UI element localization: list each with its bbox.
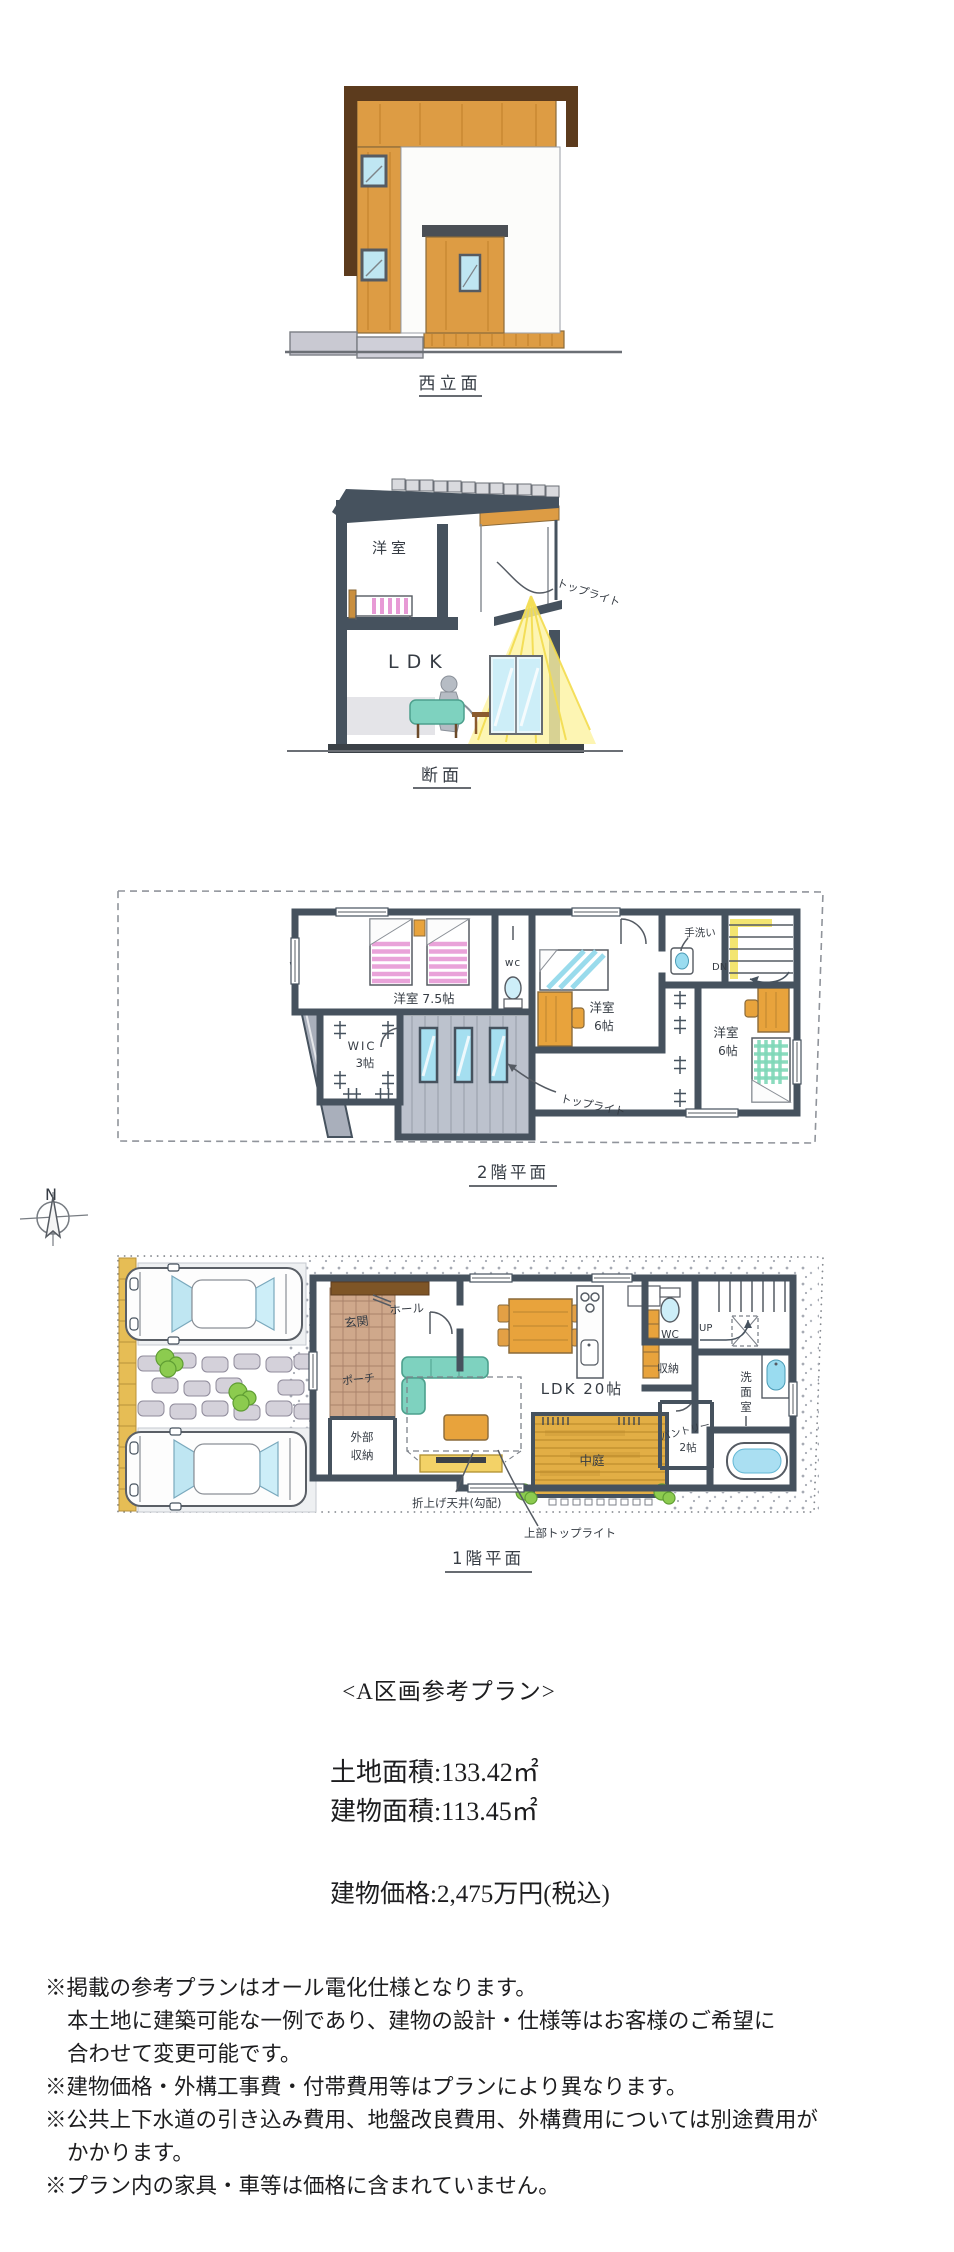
section-drawing: 洋室 LDK トップライト 断面: [280, 470, 630, 800]
entrance-canopy: [331, 1282, 429, 1295]
section-caption: 断面: [421, 766, 463, 786]
land-area: 土地面積:133.42㎡: [330, 1752, 539, 1789]
toilet-2f: [504, 977, 522, 1008]
west-elevation-drawing: 西立面: [270, 70, 630, 400]
dining-set: [498, 1299, 583, 1353]
svg-text:洗: 洗: [740, 1370, 752, 1384]
skylight-window: [420, 1028, 507, 1082]
floor1-plan: 玄関 ホール ポーチ 外部 収納 LDK 20帖 中庭 パントリー 2帖 WC …: [100, 1245, 860, 1590]
sink-2f: [671, 948, 693, 974]
skylight-note-label: 上部トップライト: [524, 1526, 616, 1540]
tv-board: [420, 1455, 502, 1472]
coffee-table: [444, 1415, 488, 1440]
ldk-label: LDK 20帖: [541, 1380, 624, 1398]
dn-label: DN: [712, 962, 727, 973]
ext-storage-label-2: 収納: [351, 1448, 374, 1462]
second-floor-slab: [336, 617, 458, 630]
sofa: [410, 700, 464, 738]
car-bottom: [126, 1428, 306, 1510]
washbasin: [762, 1352, 789, 1398]
wc-label-2f: wc: [505, 957, 521, 969]
svg-text:面: 面: [740, 1385, 752, 1399]
toilet-1f: [660, 1288, 680, 1322]
note-line: ※プラン内の家具・車等は価格に含まれていません。: [45, 2170, 940, 2203]
bed-2f: [349, 590, 412, 620]
plan-title: <A区画参考プラン>: [92, 1672, 806, 1706]
hall-label: ホール: [389, 1301, 424, 1317]
bed-room-b: [540, 950, 608, 990]
skylight-label: トップライト: [555, 576, 622, 609]
note-line: ※建物価格・外構工事費・付帯費用等はプランにより異なります。: [45, 2071, 940, 2104]
svg-text:室: 室: [740, 1400, 752, 1414]
deck-edge-boards: [549, 1499, 652, 1505]
entrance-label: 玄関: [344, 1313, 369, 1330]
ceiling-note-label: 折上げ天井(勾配): [412, 1496, 501, 1510]
wic-size-label: 3帖: [356, 1056, 375, 1070]
room-b-label: 洋室: [589, 1000, 614, 1015]
entrance-tiles: [330, 1288, 395, 1420]
room-b-size-label: 6帖: [594, 1018, 614, 1033]
wc-label-1f: WC: [661, 1329, 679, 1341]
main-room-label: 洋室 7.5帖: [393, 991, 454, 1006]
bathtub: [727, 1443, 787, 1479]
up-label: UP: [699, 1323, 712, 1334]
storage-label: 収納: [657, 1362, 679, 1375]
ext-storage-label-1: 外部: [351, 1430, 374, 1444]
note-line: ※掲載の参考プランはオール電化仕様となります。: [45, 1972, 940, 2005]
elevation-caption: 西立面: [419, 374, 482, 394]
bed-room-c: [752, 1038, 790, 1102]
disclaimer-notes: ※掲載の参考プランはオール電化仕様となります。 本土地に建築可能な一例であり、建…: [45, 1972, 940, 2203]
floor2-caption: 2階平面: [477, 1163, 549, 1182]
compass: N: [20, 1175, 110, 1260]
note-line: かかります。: [45, 2137, 940, 2170]
window-1f: [490, 656, 542, 734]
note-line: ※公共上下水道の引き込み費用、地盤改良費用、外構費用については別途費用が: [45, 2104, 940, 2137]
pantry-size-label: 2帖: [679, 1441, 697, 1454]
note-line: 合わせて変更可能です。: [45, 2038, 940, 2071]
room-c-size-label: 6帖: [718, 1043, 738, 1058]
room-c-label: 洋室: [713, 1025, 738, 1040]
courtyard-label: 中庭: [579, 1453, 605, 1468]
wic-label: WIC: [348, 1039, 377, 1053]
building-price: 建物価格:2,475万円(税込): [330, 1874, 610, 1910]
plan-sheet: 西立面: [0, 0, 954, 2252]
handwash-label: 手洗い: [684, 926, 716, 939]
building-area: 建物面積:113.45㎡: [330, 1791, 538, 1828]
car-top: [126, 1264, 302, 1344]
room-1f-label: LDK: [388, 651, 450, 673]
room-2f-label: 洋室: [372, 539, 410, 557]
note-line: 本土地に建築可能な一例であり、建物の設計・仕様等はお客様のご希望に: [45, 2005, 940, 2038]
floor1-caption: 1階平面: [452, 1549, 524, 1568]
north-label: N: [45, 1185, 57, 1204]
floor2-plan: 洋室 7.5帖 WIC 3帖 wc 手洗い DN 洋室 6帖 洋室 6帖 トップ…: [100, 880, 860, 1200]
